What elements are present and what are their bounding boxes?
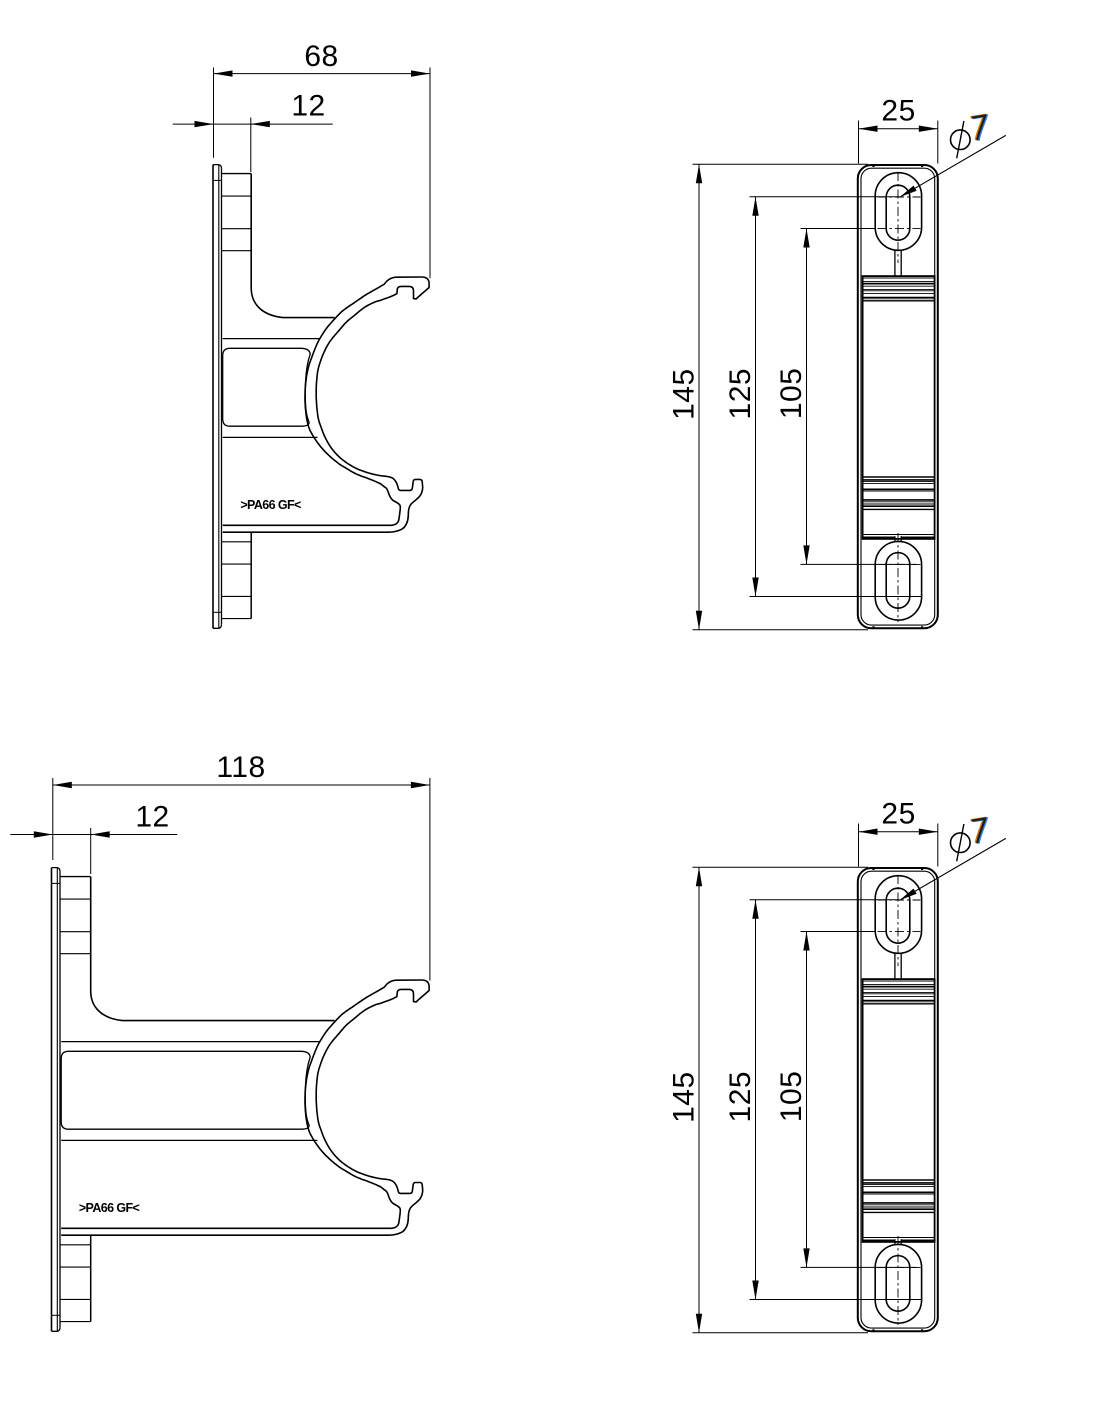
svg-text:>PA66 GF<: >PA66 GF< [79,1201,140,1215]
svg-text:145: 145 [668,1071,701,1123]
svg-text:145: 145 [668,368,701,420]
svg-text:25: 25 [881,95,915,128]
svg-text:118: 118 [216,751,265,784]
svg-text:125: 125 [724,1071,757,1123]
svg-text:125: 125 [724,368,757,420]
svg-text:68: 68 [304,40,338,73]
svg-text:>PA66 GF<: >PA66 GF< [240,498,301,512]
svg-text:25: 25 [881,798,915,831]
svg-text:105: 105 [775,1071,808,1123]
svg-text:12: 12 [291,90,325,123]
svg-text:12: 12 [135,801,169,834]
svg-text:105: 105 [775,368,808,420]
